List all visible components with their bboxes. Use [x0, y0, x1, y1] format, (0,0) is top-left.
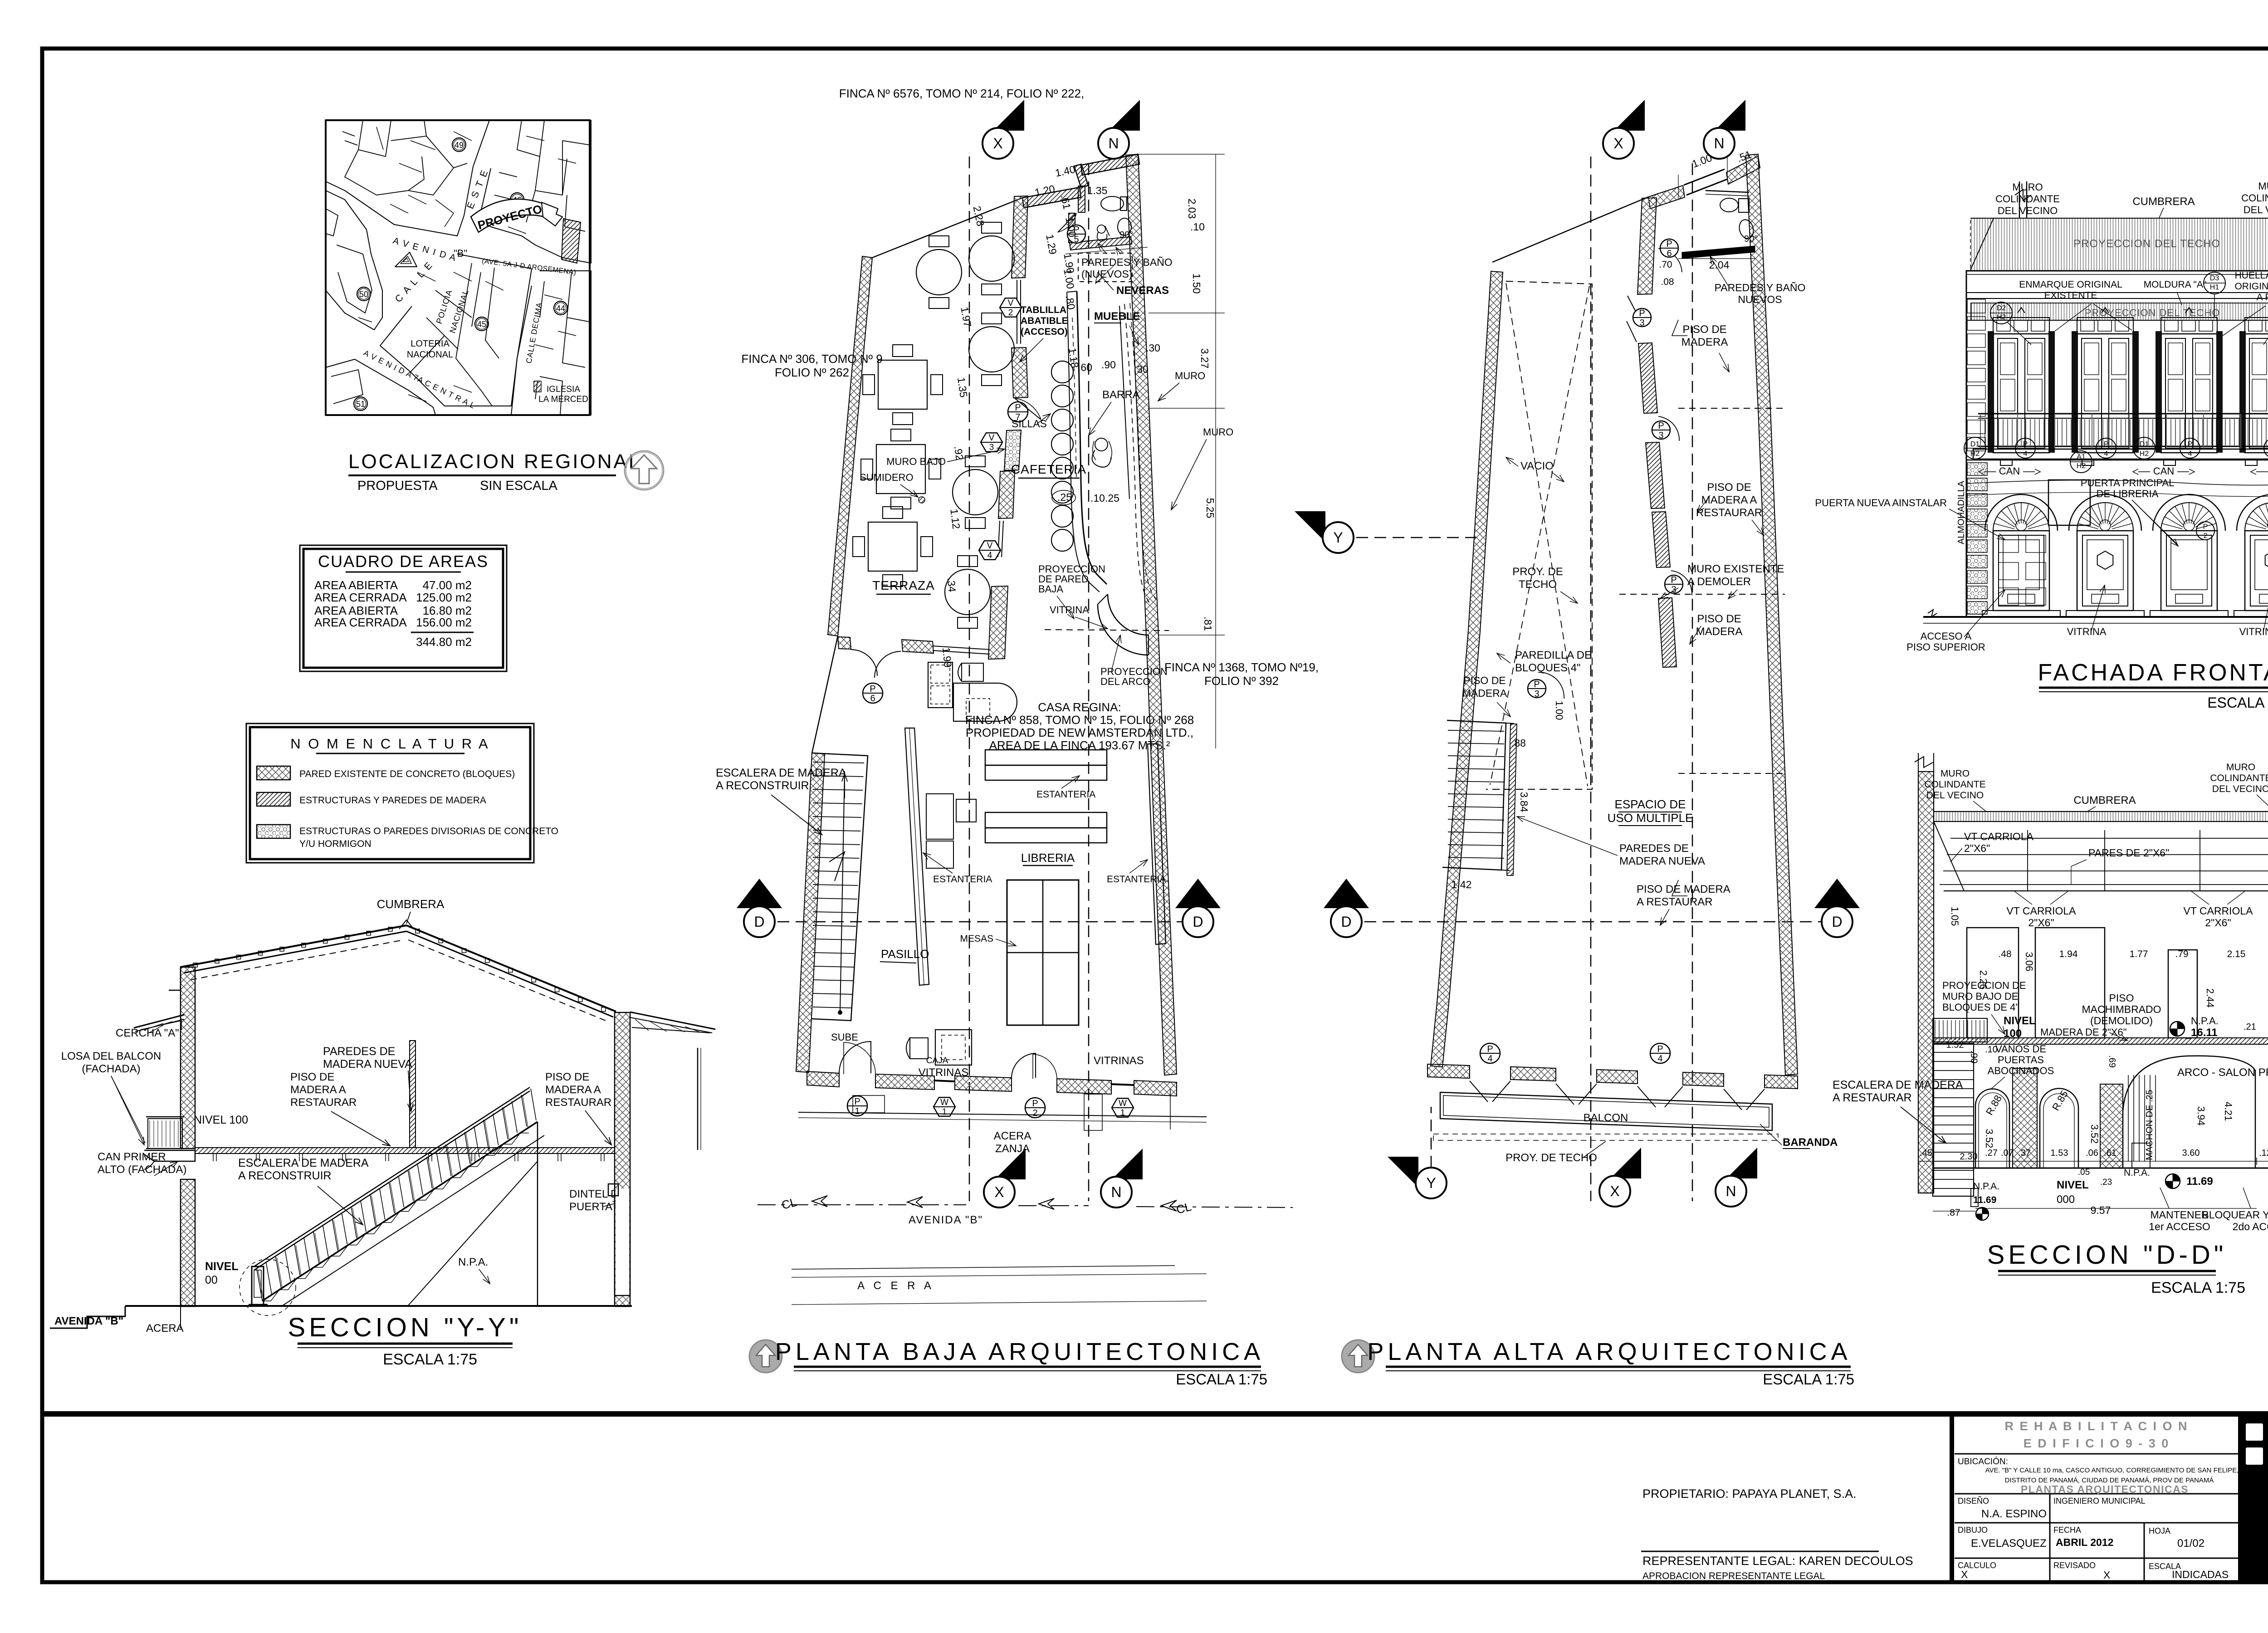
svg-text:2"X6": 2"X6" [1964, 842, 1990, 854]
svg-text:PAREDILLA DE: PAREDILLA DE [1515, 649, 1592, 661]
svg-text:N.P.A.: N.P.A. [2191, 1015, 2219, 1027]
svg-text:PAREDES Y BAÑO: PAREDES Y BAÑO [1715, 282, 1806, 293]
svg-text:MURO BAJO DE: MURO BAJO DE [1942, 991, 2018, 1002]
svg-text:CUADRO DE AREAS: CUADRO DE AREAS [318, 552, 489, 571]
svg-text:N: N [1714, 135, 1724, 152]
svg-text:3.52: 3.52 [2089, 1125, 2100, 1144]
svg-text:PROY. DE TECHO: PROY. DE TECHO [1505, 1152, 1597, 1164]
svg-text:MURO: MURO [1203, 426, 1233, 438]
svg-text:MACHIMBRADO: MACHIMBRADO [2082, 1003, 2161, 1015]
svg-text:DEL VECINO: DEL VECINO [2244, 204, 2268, 215]
svg-text:Y/U HORMIGON: Y/U HORMIGON [299, 839, 371, 849]
svg-text:PUERTA: PUERTA [569, 1201, 612, 1213]
svg-text:PISO DE MADERA: PISO DE MADERA [1637, 883, 1730, 895]
svg-text:SIN ESCALA: SIN ESCALA [480, 479, 557, 493]
svg-text:6: 6 [870, 694, 875, 704]
svg-text:PISO DE: PISO DE [1697, 613, 1741, 625]
svg-text:A RESTAURAR: A RESTAURAR [1833, 1091, 1912, 1104]
svg-text:P: P [1487, 1044, 1493, 1054]
svg-text:2.15: 2.15 [2227, 949, 2246, 959]
svg-text:PLANTAS ARQUITECTONICAS: PLANTAS ARQUITECTONICAS [2021, 1483, 2189, 1495]
svg-text:IGLESIA: IGLESIA [547, 385, 580, 394]
svg-text:BAJA: BAJA [1038, 583, 1063, 595]
svg-text:PAREDES Y BAÑO: PAREDES Y BAÑO [1081, 256, 1173, 268]
svg-text:MUEBLE: MUEBLE [1094, 310, 1140, 323]
svg-text:P: P [870, 684, 875, 694]
svg-text:4: 4 [1657, 1054, 1662, 1064]
svg-text:N O M E N C L A T U R A: N O M E N C L A T U R A [290, 736, 489, 752]
svg-text:2.03: 2.03 [1186, 199, 1198, 219]
svg-text:ESCALA 1:75: ESCALA 1:75 [1176, 1371, 1267, 1388]
svg-text:4: 4 [2024, 450, 2028, 458]
svg-text:1.42: 1.42 [1452, 879, 1472, 890]
svg-text:VT CARRIOLA: VT CARRIOLA [1964, 831, 2034, 842]
svg-text:MURO: MURO [1175, 370, 1205, 381]
svg-text:.48: .48 [1998, 949, 2011, 959]
svg-text:1.52: 1.52 [1946, 1040, 1964, 1050]
svg-text:P: P [2023, 440, 2028, 448]
svg-text:TECHO: TECHO [1519, 578, 1557, 591]
svg-text:AREA CERRADA: AREA CERRADA [314, 616, 407, 629]
svg-text:MURO EXISTENTE: MURO EXISTENTE [1687, 563, 1784, 575]
svg-text:MURO: MURO [2012, 181, 2043, 193]
svg-text:ARCO - SALON PRINCIPAL: ARCO - SALON PRINCIPAL [2177, 1066, 2268, 1079]
svg-text:.21: .21 [2244, 1022, 2256, 1032]
svg-text:CERCHA "A": CERCHA "A" [116, 1027, 179, 1039]
svg-text:1.53: 1.53 [2051, 1148, 2068, 1158]
svg-text:PAREDES DE: PAREDES DE [1619, 842, 1689, 855]
svg-text:N.P.A.: N.P.A. [458, 1256, 488, 1268]
svg-text:.25: .25 [1105, 492, 1119, 504]
svg-text:X: X [2103, 1569, 2110, 1581]
svg-text:ESCALERA DE MADERA: ESCALERA DE MADERA [716, 767, 846, 779]
svg-text:SECCION "Y-Y": SECCION "Y-Y" [288, 1313, 523, 1342]
svg-text:MURO: MURO [2258, 181, 2268, 192]
svg-text:PISO DE: PISO DE [1682, 323, 1726, 336]
svg-text:N: N [1108, 135, 1119, 152]
svg-text:A DEMOLER: A DEMOLER [1687, 576, 1751, 588]
svg-text:N.A. ESPINO: N.A. ESPINO [1981, 1508, 2047, 1520]
svg-text:COLINDANTE: COLINDANTE [1995, 193, 2060, 205]
svg-text:.06: .06 [2086, 1148, 2098, 1158]
svg-text:BLOQUES 4": BLOQUES 4" [1515, 662, 1581, 674]
svg-text:100: 100 [2004, 1027, 2022, 1040]
svg-text:EXISTENTE: EXISTENTE [2044, 290, 2097, 301]
svg-text:4: 4 [2188, 450, 2192, 458]
svg-text:MADERA: MADERA [1681, 336, 1728, 348]
svg-text:N: N [1111, 1184, 1121, 1200]
svg-text:D: D [1341, 914, 1351, 930]
svg-text:H2: H2 [2140, 450, 2149, 458]
svg-text:47.00 m2: 47.00 m2 [423, 578, 472, 592]
svg-text:.87: .87 [1947, 1208, 1960, 1218]
svg-text:X: X [993, 135, 1002, 152]
svg-text:NIVEL: NIVEL [2057, 1179, 2089, 1191]
svg-text:H2: H2 [1970, 450, 1980, 458]
svg-text:ORIGINAL (DESTRUIDO): ORIGINAL (DESTRUIDO) [2234, 281, 2268, 292]
svg-text:.25: .25 [1057, 491, 1072, 503]
svg-text:SECCION "D-D": SECCION "D-D" [1987, 1240, 2227, 1270]
svg-text:CUMBRERA: CUMBRERA [2132, 196, 2195, 208]
svg-text:LIBRERIA: LIBRERIA [1021, 851, 1075, 865]
svg-text:H2: H2 [2077, 462, 2086, 470]
svg-text:CAN: CAN [1999, 465, 2020, 477]
svg-text:5.25: 5.25 [1204, 498, 1216, 518]
svg-text:2.44: 2.44 [2204, 988, 2216, 1008]
svg-text:P: P [1639, 308, 1645, 318]
svg-text:Y: Y [1426, 1175, 1436, 1191]
svg-text:N.P.A.: N.P.A. [1973, 1181, 1999, 1192]
svg-text:PROYECCION DEL TECHO: PROYECCION DEL TECHO [2073, 238, 2220, 250]
svg-text:.10: .10 [1090, 492, 1105, 504]
svg-text:ESCALERA DE MADERA: ESCALERA DE MADERA [238, 1157, 369, 1169]
svg-text:Y: Y [1333, 529, 1343, 546]
svg-text:2: 2 [2204, 532, 2208, 540]
svg-text:ESTRUCTURAS O PAREDES DIVISORI: ESTRUCTURAS O PAREDES DIVISORIAS DE CONC… [299, 826, 558, 836]
svg-text:1.05: 1.05 [1949, 907, 1960, 926]
svg-text:VT CARRIOLA: VT CARRIOLA [2184, 905, 2253, 917]
svg-text:N: N [1725, 1183, 1736, 1199]
svg-text:DIBUJO: DIBUJO [1958, 1525, 1988, 1535]
svg-text:FECHA: FECHA [2053, 1525, 2081, 1535]
svg-text:44: 44 [556, 304, 565, 313]
svg-text:.45: .45 [1920, 1148, 1932, 1158]
svg-text:ALTO (FACHADA): ALTO (FACHADA) [98, 1164, 186, 1176]
svg-text:MADERA NUEVA: MADERA NUEVA [1619, 855, 1705, 867]
svg-text:A RESTAURAR: A RESTAURAR [1637, 896, 1713, 908]
svg-text:P: P [2104, 440, 2109, 448]
svg-text:2do ACCESO: 2do ACCESO [2233, 1221, 2268, 1232]
svg-text:USO MULTIPLE: USO MULTIPLE [1608, 811, 1693, 825]
svg-text:PLANTA BAJA ARQUITECTONICA: PLANTA BAJA ARQUITECTONICA [775, 1338, 1264, 1365]
svg-text:FINCA Nº 6576, TOMO Nº 214, FO: FINCA Nº 6576, TOMO Nº 214, FOLIO Nº 222… [839, 87, 1085, 100]
svg-text:1.35: 1.35 [1087, 185, 1108, 196]
svg-text:VACIO: VACIO [1520, 460, 1554, 472]
svg-text:P: P [854, 1097, 860, 1107]
svg-text:DISEÑO: DISEÑO [1958, 1496, 1989, 1506]
svg-text:P: P [1032, 1099, 1038, 1109]
svg-text:.60: .60 [1078, 362, 1092, 373]
svg-text:50: 50 [359, 290, 368, 299]
svg-text:D1: D1 [2140, 440, 2149, 448]
svg-text:3.52: 3.52 [1984, 1129, 1995, 1149]
svg-text:REPRESENTANTE LEGAL: KAREN DEC: REPRESENTANTE LEGAL: KAREN DECOULOS [1642, 1554, 1913, 1568]
svg-text:VT CARRIOLA: VT CARRIOLA [2007, 905, 2077, 917]
svg-text:1.99: 1.99 [940, 647, 954, 668]
svg-text:2"X6": 2"X6" [2028, 917, 2054, 929]
svg-text:CAN PRIMER: CAN PRIMER [98, 1151, 166, 1163]
svg-text:AVENIDA "B": AVENIDA "B" [54, 1315, 123, 1327]
svg-text:D: D [1193, 914, 1203, 930]
svg-text:49: 49 [455, 141, 464, 150]
svg-text:D2: D2 [1997, 304, 2006, 312]
svg-text:X: X [994, 1184, 1004, 1200]
svg-text:D1: D1 [1970, 440, 1980, 448]
svg-text:4.21: 4.21 [2223, 1102, 2234, 1121]
svg-text:11.69: 11.69 [1973, 1195, 1996, 1205]
svg-text:(FACHADA): (FACHADA) [82, 1063, 140, 1075]
svg-text:.05: .05 [2078, 1168, 2090, 1177]
svg-text:ESCALA 1:75: ESCALA 1:75 [1763, 1371, 1854, 1388]
svg-text:MURO: MURO [1941, 768, 1970, 779]
svg-text:.34: .34 [945, 577, 958, 592]
svg-text:1: 1 [855, 1106, 860, 1116]
svg-text:2.30: 2.30 [1960, 1152, 1978, 1162]
svg-text:PARED EXISTENTE DE CONCRETO (B: PARED EXISTENTE DE CONCRETO (BLOQUES) [299, 769, 515, 779]
svg-text:1.12: 1.12 [948, 508, 962, 530]
svg-text:MADERA DE 2"X6": MADERA DE 2"X6" [2040, 1027, 2126, 1038]
svg-text:.30: .30 [1134, 363, 1149, 375]
svg-text:BARRA: BARRA [1102, 389, 1140, 401]
svg-text:16.11: 16.11 [2191, 1027, 2218, 1039]
svg-text:4: 4 [1487, 1054, 1492, 1064]
svg-text:000: 000 [2057, 1193, 2075, 1206]
svg-text:PISO DE: PISO DE [1463, 675, 1505, 686]
svg-text:3.94: 3.94 [2195, 1106, 2207, 1126]
svg-text:SUBE: SUBE [831, 1032, 858, 1043]
svg-text:ABRIL 2012: ABRIL 2012 [2056, 1536, 2113, 1548]
svg-text:ESCALA 1:75: ESCALA 1:75 [2151, 1279, 2245, 1296]
svg-text:ACERA: ACERA [994, 1130, 1031, 1142]
svg-text:1.94: 1.94 [2059, 949, 2078, 959]
svg-text:.08: .08 [1661, 277, 1674, 287]
svg-text:AVE. "B" Y CALLE 10 ma, CASCO: AVE. "B" Y CALLE 10 ma, CASCO ANTIGUO, C… [1985, 1467, 2239, 1474]
svg-text:.70: .70 [1659, 259, 1672, 270]
svg-text:MURO BAJO: MURO BAJO [886, 456, 946, 467]
svg-text:A RECONSTRUIR: A RECONSTRUIR [238, 1169, 332, 1182]
svg-text:DE LIBRERIA: DE LIBRERIA [2097, 488, 2159, 499]
svg-text:AREA ABIERTA: AREA ABIERTA [314, 578, 398, 592]
svg-text:D: D [754, 914, 764, 930]
svg-text:ESCALA 1:75: ESCALA 1:75 [383, 1351, 477, 1368]
svg-text:HOJA: HOJA [2149, 1526, 2170, 1535]
svg-text:3.60: 3.60 [2182, 1148, 2200, 1158]
svg-text:N.P.A.: N.P.A. [2124, 1168, 2150, 1178]
svg-text:NEVERAS: NEVERAS [1116, 284, 1169, 297]
svg-text:3: 3 [989, 443, 994, 452]
svg-text:MACHON DE .25: MACHON DE .25 [2145, 1090, 2155, 1160]
svg-text:CUMBRERA: CUMBRERA [2073, 794, 2136, 807]
svg-text:.90: .90 [1101, 359, 1116, 371]
svg-text:VITRINA: VITRINA [2067, 626, 2107, 637]
svg-text:3.84: 3.84 [1518, 792, 1530, 812]
svg-text:P: P [1657, 1044, 1663, 1054]
svg-text:SUMIDERO: SUMIDERO [860, 472, 914, 483]
svg-text:00: 00 [205, 1274, 218, 1286]
svg-text:VITRINAS: VITRINAS [1094, 1055, 1144, 1067]
svg-text:1.77: 1.77 [2130, 949, 2148, 959]
svg-text:LOTERIA: LOTERIA [411, 339, 450, 349]
svg-text:DEL ARCO: DEL ARCO [1100, 676, 1150, 687]
svg-text:PUERTA NUEVA AINSTALAR: PUERTA NUEVA AINSTALAR [1815, 497, 1947, 508]
svg-text:(NUEVOS): (NUEVOS) [1081, 268, 1132, 280]
svg-text:A C E R A: A C E R A [857, 1280, 934, 1292]
svg-text:P: P [2203, 523, 2208, 531]
svg-text:FINCA Nº 1368, TOMO Nº19,: FINCA Nº 1368, TOMO Nº19, [1164, 660, 1319, 674]
svg-text:PROPIETARIO: PAPAYA PLANET, S.: PROPIETARIO: PAPAYA PLANET, S.A. [1642, 1487, 1857, 1501]
svg-text:CAJA: CAJA [926, 1056, 948, 1066]
svg-text:NIVEL: NIVEL [2004, 1015, 2036, 1027]
svg-text:REVISADO: REVISADO [2053, 1561, 2096, 1570]
svg-text:RESTAURAR: RESTAURAR [545, 1096, 611, 1109]
svg-text:.69: .69 [2107, 1055, 2117, 1068]
svg-text:.79: .79 [2175, 949, 2188, 959]
svg-text:E.VELASQUEZ: E.VELASQUEZ [1971, 1537, 2047, 1550]
svg-text:H2: H2 [1997, 313, 2006, 321]
svg-text:51: 51 [356, 400, 365, 409]
svg-text:P: P [1015, 403, 1021, 413]
svg-text:NIVEL 100: NIVEL 100 [194, 1114, 248, 1126]
svg-text:9.57: 9.57 [2091, 1204, 2111, 1216]
svg-text:ESTANTERIA: ESTANTERIA [933, 874, 992, 885]
svg-text:LA MERCED: LA MERCED [538, 395, 588, 404]
svg-text:.88: .88 [1511, 737, 1526, 749]
svg-text:2.26: 2.26 [1978, 970, 1989, 990]
svg-text:SILLAS: SILLAS [1012, 418, 1047, 430]
svg-text:MADERA A: MADERA A [545, 1084, 601, 1096]
svg-text:MADERA: MADERA [1696, 626, 1743, 638]
svg-text:V: V [987, 541, 993, 551]
svg-text:ESCALA 1:75: ESCALA 1:75 [2207, 694, 2268, 711]
svg-text:AVENIDA "B": AVENIDA "B" [909, 1214, 983, 1226]
svg-text:VITRINA: VITRINA [2239, 626, 2268, 637]
svg-text:.10: .10 [1190, 221, 1205, 233]
svg-text:D3: D3 [2210, 274, 2219, 282]
svg-text:CUMBRERA: CUMBRERA [377, 897, 445, 911]
svg-text:RESTAURAR: RESTAURAR [1696, 507, 1762, 519]
svg-text:BLOQUEAR Y REPELLAR: BLOQUEAR Y REPELLAR [2202, 1209, 2268, 1221]
svg-text:PUERTAS: PUERTAS [1998, 1054, 2044, 1066]
svg-text:90°: 90° [1119, 230, 1133, 240]
svg-text:D: D [1832, 914, 1842, 930]
svg-text:TABLILLA: TABLILLA [1021, 305, 1066, 315]
svg-text:TERRAZA: TERRAZA [872, 578, 935, 592]
svg-text:A RESTAURAR: A RESTAURAR [2257, 292, 2268, 303]
svg-text:PARES DE 2"X6": PARES DE 2"X6" [2088, 847, 2169, 859]
svg-text:VITRINA: VITRINA [1050, 604, 1089, 616]
svg-text:P: P [1671, 575, 1677, 585]
svg-text:"B": "B" [454, 248, 467, 259]
svg-text:2"X6": 2"X6" [2205, 917, 2231, 929]
svg-text:DEL VECINO: DEL VECINO [1926, 790, 1984, 801]
svg-text:BALCON: BALCON [1584, 1112, 1628, 1124]
svg-text:CASA REGINA:: CASA REGINA: [1038, 700, 1121, 714]
svg-text:ESCALERA DE MADERA: ESCALERA DE MADERA [1833, 1079, 1963, 1091]
svg-text:A1: A1 [2077, 453, 2086, 461]
svg-text:UBICACIÓN:: UBICACIÓN: [1958, 1457, 2008, 1467]
svg-text:45: 45 [477, 320, 486, 329]
svg-text:ESPACIO DE: ESPACIO DE [1614, 797, 1686, 811]
svg-text:H1: H1 [2210, 284, 2219, 291]
svg-text:APROBACION REPRESENTANTE LEGAL: APROBACION REPRESENTANTE LEGAL [1642, 1571, 1825, 1581]
svg-text:PLANTA ALTA ARQUITECTONICA: PLANTA ALTA ARQUITECTONICA [1367, 1338, 1851, 1365]
svg-text:X: X [1961, 1569, 1968, 1580]
svg-text:.27: .27 [1985, 1148, 1998, 1158]
svg-text:PROPUESTA: PROPUESTA [357, 479, 438, 493]
svg-text:.30: .30 [1146, 342, 1160, 354]
svg-text:3.27: 3.27 [1199, 348, 1211, 369]
svg-text:MADERA A: MADERA A [290, 1084, 346, 1096]
svg-text:125.00 m2: 125.00 m2 [416, 591, 472, 604]
svg-text:CAN: CAN [2153, 465, 2174, 477]
svg-text:FOLIO Nº 262: FOLIO Nº 262 [775, 366, 849, 379]
svg-text:01/02: 01/02 [2177, 1537, 2204, 1550]
svg-text:MANTENER: MANTENER [2150, 1209, 2209, 1221]
svg-text:PASILLO: PASILLO [881, 947, 929, 961]
svg-text:.12: .12 [2259, 1148, 2268, 1158]
svg-text:PROYECCION DEL TECHO: PROYECCION DEL TECHO [2085, 307, 2220, 318]
svg-text:.07: .07 [2001, 1148, 2014, 1158]
svg-text:E D I F I C I O 9 - 3 0: E D I F I C I O 9 - 3 0 [2024, 1437, 2170, 1450]
svg-text:.61: .61 [2104, 1148, 2116, 1158]
svg-text:COLINDANTE: COLINDANTE [2210, 773, 2268, 783]
svg-text:MOLDURA "A": MOLDURA "A" [2144, 279, 2207, 290]
svg-text:6: 6 [1667, 249, 1672, 259]
svg-text:90°: 90° [1744, 234, 1758, 244]
svg-text:X: X [1613, 135, 1623, 152]
svg-text:ESTANTERIA: ESTANTERIA [1107, 874, 1166, 885]
svg-text:VITRINAS: VITRINAS [919, 1066, 969, 1079]
svg-text:3: 3 [1534, 689, 1539, 699]
svg-text:FACHADA FRONTAL: FACHADA FRONTAL [2038, 660, 2268, 686]
svg-text:COLINDANTE: COLINDANTE [1924, 779, 1985, 790]
svg-text:4: 4 [987, 551, 992, 560]
svg-text:1er ACCESO: 1er ACCESO [2149, 1221, 2210, 1232]
svg-text:4: 4 [2104, 450, 2108, 458]
svg-text:MURO: MURO [2226, 762, 2255, 772]
svg-text:ALMOHADILLA: ALMOHADILLA [1956, 480, 1966, 544]
svg-text:P: P [2188, 440, 2193, 448]
svg-text:P: P [1658, 421, 1664, 431]
svg-text:PUERTA PRINCIPAL: PUERTA PRINCIPAL [2081, 477, 2175, 489]
svg-text:ABATIBLE: ABATIBLE [1021, 316, 1068, 326]
svg-text:2.04: 2.04 [1709, 259, 1730, 271]
svg-text:DEL VECINO: DEL VECINO [2212, 784, 2268, 794]
svg-text:.23: .23 [2100, 1178, 2112, 1187]
svg-text:BLOQUES DE 4": BLOQUES DE 4" [1942, 1002, 2019, 1013]
svg-text:VANOS DE: VANOS DE [1995, 1043, 2046, 1055]
svg-text:R E H A B I L I T A C I O N: R E H A B I L I T A C I O N [2004, 1419, 2188, 1433]
svg-text:2: 2 [1032, 1108, 1037, 1118]
svg-text:NACIONAL: NACIONAL [407, 350, 453, 360]
svg-text:V: V [1008, 298, 1014, 308]
svg-text:PISO SUPERIOR: PISO SUPERIOR [1906, 641, 1985, 653]
svg-text:RESTAURAR: RESTAURAR [290, 1096, 357, 1109]
svg-text:3: 3 [1639, 318, 1644, 328]
svg-text:156.00 m2: 156.00 m2 [416, 616, 472, 629]
svg-text:HUELLA DE ENMARQUE: HUELLA DE ENMARQUE [2235, 270, 2268, 281]
svg-text:NUEVOS: NUEVOS [1738, 293, 1782, 305]
svg-text:ESTANTERIA: ESTANTERIA [1036, 789, 1095, 800]
svg-text:MADERA NUEVA: MADERA NUEVA [323, 1058, 412, 1071]
svg-text:NIVEL: NIVEL [205, 1260, 239, 1273]
svg-text:MADERA: MADERA [1462, 687, 1507, 699]
svg-text:(ACCESO): (ACCESO) [1021, 327, 1068, 337]
svg-text:PISO DE: PISO DE [290, 1071, 334, 1083]
svg-text:LOCALIZACION REGIONAL: LOCALIZACION REGIONAL [348, 450, 641, 473]
svg-text:PROY. DE: PROY. DE [1512, 566, 1563, 578]
svg-text:INDICADAS: INDICADAS [2172, 1569, 2229, 1580]
svg-text:PISO DE: PISO DE [545, 1071, 589, 1083]
svg-text:1.50: 1.50 [1191, 274, 1202, 294]
svg-text:AREA CERRADA: AREA CERRADA [314, 591, 407, 604]
svg-text:P: P [1534, 680, 1540, 689]
svg-text:MESAS: MESAS [960, 934, 993, 944]
svg-text:2: 2 [1008, 308, 1013, 318]
svg-text:344.80 m2: 344.80 m2 [416, 635, 472, 649]
svg-text:P: P [1666, 239, 1672, 249]
svg-text:BARANDA: BARANDA [1783, 1136, 1838, 1149]
